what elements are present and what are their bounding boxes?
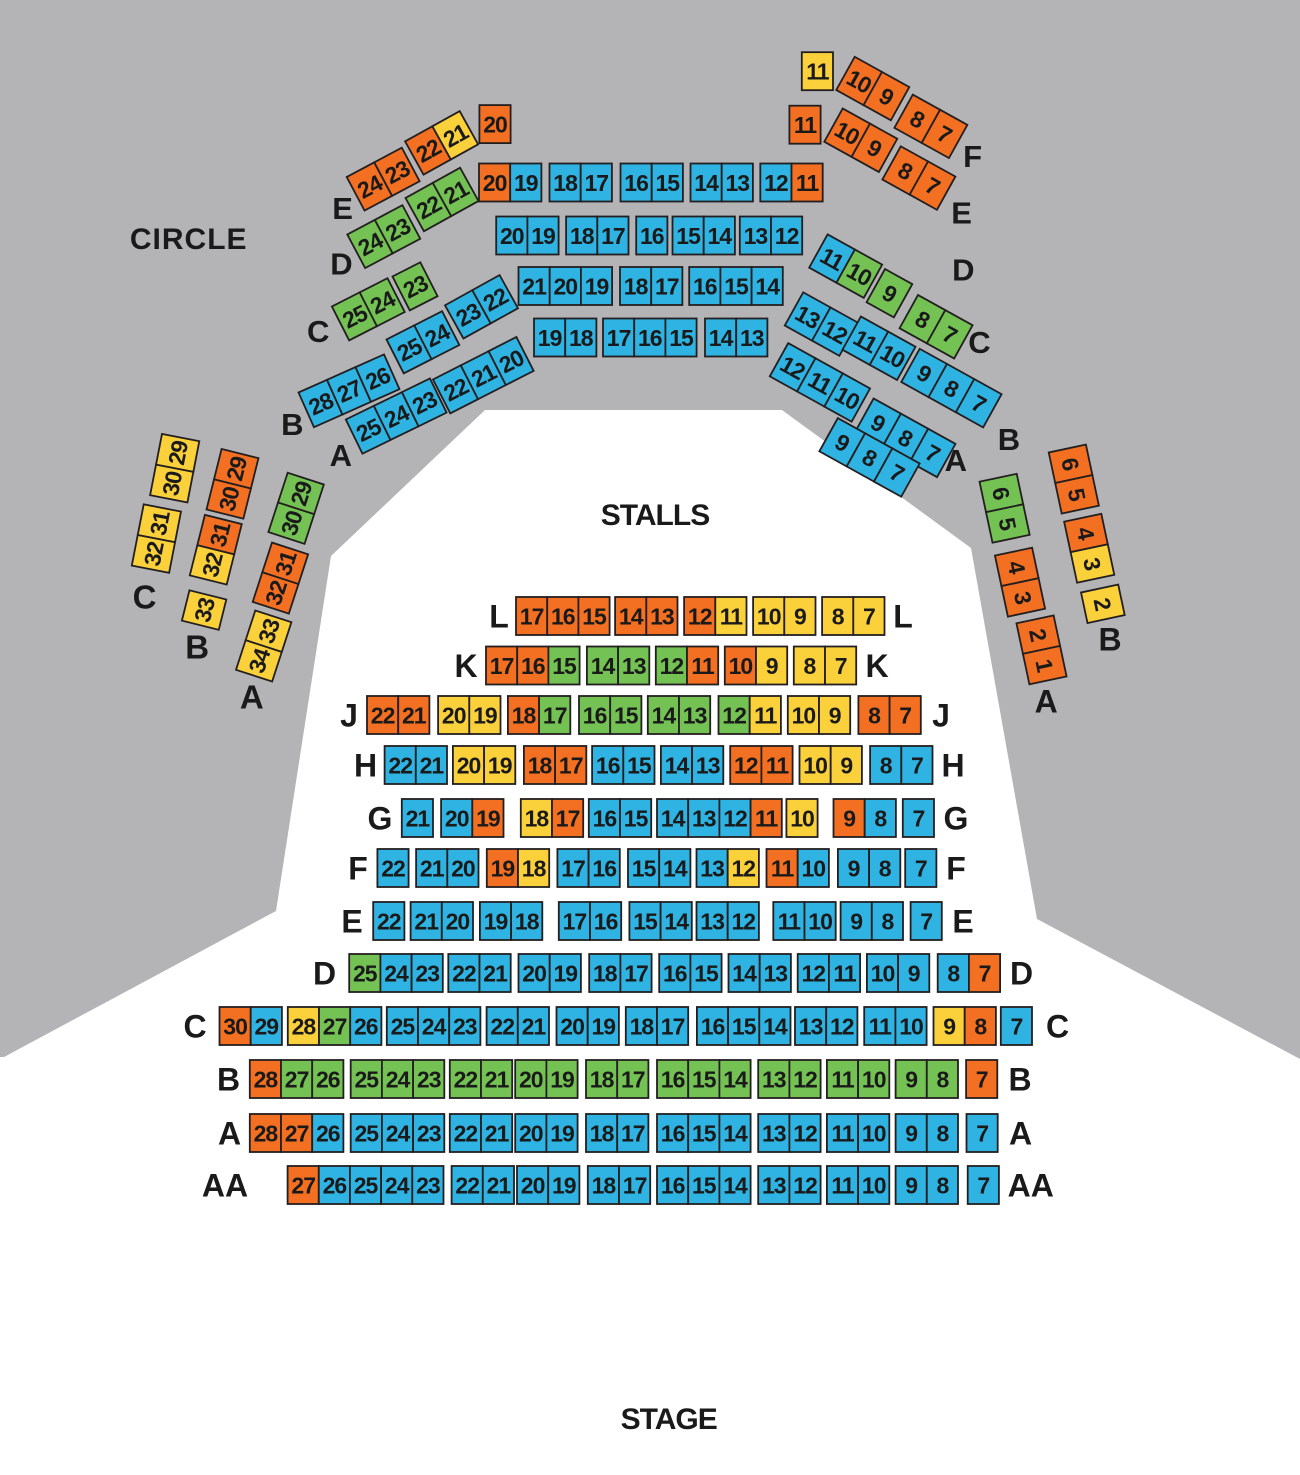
svg-text:9: 9 <box>829 702 841 728</box>
svg-text:12: 12 <box>723 805 747 831</box>
svg-text:B: B <box>1008 1062 1031 1098</box>
svg-text:7: 7 <box>1011 1013 1023 1039</box>
svg-text:16: 16 <box>640 223 664 249</box>
svg-text:16: 16 <box>661 1066 685 1092</box>
svg-text:14: 14 <box>708 223 733 249</box>
svg-text:10: 10 <box>862 1172 886 1198</box>
svg-text:25: 25 <box>354 1172 379 1198</box>
svg-text:11: 11 <box>833 960 857 986</box>
svg-text:12: 12 <box>732 855 756 881</box>
svg-text:13: 13 <box>650 603 674 629</box>
svg-text:G: G <box>368 801 393 837</box>
svg-text:11: 11 <box>755 805 779 831</box>
svg-text:22: 22 <box>381 855 405 881</box>
svg-text:18: 18 <box>593 960 618 986</box>
svg-text:13: 13 <box>762 1172 786 1198</box>
svg-text:F: F <box>348 851 368 887</box>
svg-text:J: J <box>340 698 358 734</box>
svg-text:D: D <box>313 956 336 992</box>
svg-text:AA: AA <box>1008 1168 1054 1204</box>
svg-text:18: 18 <box>553 170 578 196</box>
svg-text:8: 8 <box>937 1066 950 1092</box>
svg-text:10: 10 <box>862 1066 886 1092</box>
svg-text:22: 22 <box>452 960 476 986</box>
svg-text:13: 13 <box>726 170 750 196</box>
svg-text:A: A <box>945 443 967 478</box>
svg-text:8: 8 <box>804 653 817 679</box>
svg-text:19: 19 <box>484 908 508 934</box>
svg-text:17: 17 <box>621 1120 645 1146</box>
svg-text:10: 10 <box>790 805 814 831</box>
svg-text:17: 17 <box>585 170 609 196</box>
svg-text:14: 14 <box>694 170 719 196</box>
svg-text:20: 20 <box>554 273 578 299</box>
svg-text:22: 22 <box>388 752 412 778</box>
svg-text:14: 14 <box>663 855 688 881</box>
svg-text:27: 27 <box>285 1120 309 1146</box>
svg-text:25: 25 <box>355 1066 380 1092</box>
svg-text:15: 15 <box>732 1013 757 1039</box>
svg-text:7: 7 <box>911 752 923 778</box>
svg-text:14: 14 <box>755 273 780 299</box>
svg-text:21: 21 <box>406 805 431 831</box>
svg-text:21: 21 <box>485 1120 510 1146</box>
svg-text:14: 14 <box>723 1120 748 1146</box>
svg-text:20: 20 <box>457 752 481 778</box>
svg-text:23: 23 <box>416 1172 440 1198</box>
svg-text:28: 28 <box>254 1066 279 1092</box>
svg-text:9: 9 <box>843 805 855 831</box>
svg-text:20: 20 <box>445 805 469 831</box>
svg-text:13: 13 <box>799 1013 823 1039</box>
svg-text:14: 14 <box>723 1066 748 1092</box>
svg-text:23: 23 <box>453 1013 477 1039</box>
svg-text:18: 18 <box>590 1066 615 1092</box>
svg-text:C: C <box>307 314 329 349</box>
svg-text:13: 13 <box>696 752 720 778</box>
svg-text:12: 12 <box>732 908 756 934</box>
svg-text:20: 20 <box>451 855 475 881</box>
svg-text:20: 20 <box>483 170 507 196</box>
svg-text:12: 12 <box>793 1066 817 1092</box>
svg-text:8: 8 <box>880 752 893 778</box>
svg-text:14: 14 <box>619 603 644 629</box>
svg-text:14: 14 <box>661 805 686 831</box>
svg-text:21: 21 <box>487 1172 512 1198</box>
svg-text:18: 18 <box>592 1172 617 1198</box>
svg-text:10: 10 <box>792 702 816 728</box>
svg-text:16: 16 <box>594 908 618 934</box>
svg-text:9: 9 <box>794 603 806 629</box>
svg-text:17: 17 <box>559 752 583 778</box>
svg-text:7: 7 <box>976 1120 988 1146</box>
svg-text:15: 15 <box>614 702 639 728</box>
svg-text:8: 8 <box>868 702 881 728</box>
svg-text:21: 21 <box>483 960 508 986</box>
svg-text:16: 16 <box>663 960 687 986</box>
svg-text:21: 21 <box>420 752 445 778</box>
svg-text:J: J <box>932 698 950 734</box>
svg-text:19: 19 <box>491 855 515 881</box>
svg-text:CIRCLE: CIRCLE <box>130 223 248 256</box>
svg-text:15: 15 <box>632 855 657 881</box>
svg-text:21: 21 <box>522 1013 547 1039</box>
svg-text:8: 8 <box>832 603 845 629</box>
svg-text:19: 19 <box>488 752 512 778</box>
svg-text:17: 17 <box>661 1013 685 1039</box>
svg-text:E: E <box>951 196 972 231</box>
svg-text:13: 13 <box>762 1120 786 1146</box>
svg-text:16: 16 <box>624 170 648 196</box>
svg-text:19: 19 <box>550 1120 574 1146</box>
svg-text:24: 24 <box>422 1013 447 1039</box>
svg-text:22: 22 <box>455 1172 479 1198</box>
svg-text:26: 26 <box>354 1013 378 1039</box>
svg-text:23: 23 <box>415 960 439 986</box>
svg-text:14: 14 <box>723 1172 748 1198</box>
svg-text:C: C <box>1046 1009 1069 1045</box>
svg-text:28: 28 <box>292 1013 317 1039</box>
svg-text:STAGE: STAGE <box>621 1403 717 1436</box>
svg-text:22: 22 <box>454 1120 478 1146</box>
svg-text:9: 9 <box>905 1066 917 1092</box>
svg-text:12: 12 <box>764 170 788 196</box>
svg-text:25: 25 <box>355 1120 380 1146</box>
svg-text:A: A <box>218 1116 241 1152</box>
svg-text:9: 9 <box>850 908 862 934</box>
svg-text:16: 16 <box>693 273 717 299</box>
svg-text:13: 13 <box>744 223 768 249</box>
svg-text:7: 7 <box>915 855 927 881</box>
svg-text:18: 18 <box>630 1013 655 1039</box>
svg-text:15: 15 <box>692 1066 717 1092</box>
svg-text:8: 8 <box>937 1120 950 1146</box>
svg-text:7: 7 <box>899 702 911 728</box>
svg-text:22: 22 <box>490 1013 514 1039</box>
svg-text:27: 27 <box>285 1066 309 1092</box>
svg-text:9: 9 <box>905 1172 917 1198</box>
svg-text:H: H <box>941 748 964 784</box>
svg-text:L: L <box>489 599 509 635</box>
svg-text:19: 19 <box>476 805 500 831</box>
svg-text:15: 15 <box>627 752 652 778</box>
svg-text:12: 12 <box>722 702 746 728</box>
svg-text:20: 20 <box>446 908 470 934</box>
svg-text:7: 7 <box>976 1066 988 1092</box>
svg-text:7: 7 <box>920 908 932 934</box>
svg-text:15: 15 <box>676 223 701 249</box>
svg-text:8: 8 <box>937 1172 950 1198</box>
svg-text:18: 18 <box>624 273 649 299</box>
svg-text:17: 17 <box>543 702 567 728</box>
svg-text:18: 18 <box>522 855 547 881</box>
svg-text:23: 23 <box>417 1066 441 1092</box>
svg-text:20: 20 <box>442 702 466 728</box>
svg-text:16: 16 <box>638 325 662 351</box>
svg-text:13: 13 <box>692 805 716 831</box>
svg-text:13: 13 <box>683 702 707 728</box>
svg-text:17: 17 <box>601 223 625 249</box>
svg-text:A: A <box>240 679 264 716</box>
svg-text:16: 16 <box>596 752 620 778</box>
svg-text:15: 15 <box>624 805 649 831</box>
svg-text:20: 20 <box>519 1120 543 1146</box>
svg-text:19: 19 <box>531 223 555 249</box>
svg-text:A: A <box>330 438 352 473</box>
svg-text:15: 15 <box>656 170 681 196</box>
svg-text:9: 9 <box>943 1013 955 1039</box>
svg-text:10: 10 <box>802 855 826 881</box>
svg-text:14: 14 <box>664 908 689 934</box>
svg-text:14: 14 <box>652 702 677 728</box>
svg-text:11: 11 <box>794 112 818 138</box>
svg-text:12: 12 <box>793 1172 817 1198</box>
svg-text:9: 9 <box>905 1120 917 1146</box>
svg-text:17: 17 <box>621 1066 645 1092</box>
svg-text:15: 15 <box>582 603 607 629</box>
svg-text:17: 17 <box>520 603 544 629</box>
svg-text:F: F <box>963 139 982 174</box>
svg-text:20: 20 <box>522 960 546 986</box>
svg-text:STALLS: STALLS <box>601 499 709 532</box>
svg-text:18: 18 <box>525 805 550 831</box>
svg-text:15: 15 <box>692 1172 717 1198</box>
svg-text:8: 8 <box>882 908 895 934</box>
svg-text:27: 27 <box>323 1013 347 1039</box>
svg-text:16: 16 <box>583 702 607 728</box>
svg-text:19: 19 <box>552 1172 576 1198</box>
svg-text:16: 16 <box>521 653 545 679</box>
svg-text:21: 21 <box>402 702 427 728</box>
svg-text:16: 16 <box>551 603 575 629</box>
svg-text:13: 13 <box>762 1066 786 1092</box>
svg-text:B: B <box>217 1062 240 1098</box>
svg-text:9: 9 <box>908 960 920 986</box>
svg-text:7: 7 <box>979 960 991 986</box>
svg-text:11: 11 <box>806 59 830 85</box>
svg-text:21: 21 <box>485 1066 510 1092</box>
svg-text:10: 10 <box>729 653 753 679</box>
svg-text:7: 7 <box>913 805 925 831</box>
svg-text:14: 14 <box>591 653 616 679</box>
svg-text:13: 13 <box>740 325 764 351</box>
svg-text:16: 16 <box>661 1120 685 1146</box>
svg-text:13: 13 <box>622 653 646 679</box>
svg-text:11: 11 <box>691 653 715 679</box>
svg-text:11: 11 <box>754 702 778 728</box>
svg-text:21: 21 <box>420 855 445 881</box>
svg-text:D: D <box>952 253 974 288</box>
svg-text:12: 12 <box>688 603 712 629</box>
svg-text:15: 15 <box>724 273 749 299</box>
svg-text:17: 17 <box>607 325 631 351</box>
svg-text:20: 20 <box>521 1172 545 1198</box>
svg-text:20: 20 <box>519 1066 543 1092</box>
svg-text:25: 25 <box>391 1013 416 1039</box>
svg-text:19: 19 <box>585 273 609 299</box>
svg-text:12: 12 <box>802 960 826 986</box>
svg-text:10: 10 <box>808 908 832 934</box>
svg-text:18: 18 <box>569 325 594 351</box>
svg-text:8: 8 <box>879 855 892 881</box>
svg-text:27: 27 <box>291 1172 315 1198</box>
svg-text:30: 30 <box>223 1013 247 1039</box>
svg-text:D: D <box>330 246 352 281</box>
svg-text:28: 28 <box>254 1120 279 1146</box>
svg-text:21: 21 <box>414 908 439 934</box>
svg-text:18: 18 <box>590 1120 615 1146</box>
svg-text:15: 15 <box>694 960 719 986</box>
svg-text:F: F <box>946 851 966 887</box>
svg-text:11: 11 <box>831 1172 855 1198</box>
svg-text:B: B <box>281 407 303 442</box>
svg-text:13: 13 <box>700 908 724 934</box>
svg-text:15: 15 <box>633 908 658 934</box>
svg-text:10: 10 <box>899 1013 923 1039</box>
svg-text:10: 10 <box>862 1120 886 1146</box>
svg-text:22: 22 <box>371 702 395 728</box>
svg-text:11: 11 <box>771 855 795 881</box>
svg-text:12: 12 <box>660 653 684 679</box>
svg-text:11: 11 <box>766 752 790 778</box>
svg-text:10: 10 <box>803 752 827 778</box>
svg-text:A: A <box>1009 1116 1032 1152</box>
svg-text:B: B <box>998 422 1020 457</box>
svg-text:11: 11 <box>831 1066 855 1092</box>
svg-text:14: 14 <box>763 1013 788 1039</box>
svg-text:14: 14 <box>709 325 734 351</box>
svg-text:19: 19 <box>514 170 538 196</box>
svg-text:C: C <box>183 1009 206 1045</box>
svg-text:18: 18 <box>570 223 595 249</box>
svg-text:19: 19 <box>550 1066 574 1092</box>
svg-text:16: 16 <box>592 855 616 881</box>
svg-text:E: E <box>341 904 362 940</box>
svg-text:9: 9 <box>766 653 778 679</box>
svg-text:17: 17 <box>561 855 585 881</box>
svg-text:16: 16 <box>701 1013 725 1039</box>
svg-text:17: 17 <box>563 908 587 934</box>
svg-text:A: A <box>1035 683 1058 719</box>
svg-text:18: 18 <box>512 702 537 728</box>
svg-text:15: 15 <box>552 653 577 679</box>
svg-text:13: 13 <box>764 960 788 986</box>
svg-text:20: 20 <box>560 1013 584 1039</box>
svg-text:17: 17 <box>655 273 679 299</box>
svg-text:B: B <box>1098 622 1121 658</box>
svg-text:17: 17 <box>624 960 648 986</box>
svg-text:K: K <box>454 648 477 684</box>
svg-text:17: 17 <box>490 653 514 679</box>
svg-text:26: 26 <box>316 1120 340 1146</box>
svg-text:B: B <box>185 629 209 666</box>
svg-text:10: 10 <box>757 603 781 629</box>
svg-text:12: 12 <box>734 752 758 778</box>
svg-text:10: 10 <box>871 960 895 986</box>
svg-text:12: 12 <box>775 223 799 249</box>
svg-text:12: 12 <box>793 1120 817 1146</box>
svg-text:11: 11 <box>831 1120 855 1146</box>
svg-text:17: 17 <box>556 805 580 831</box>
svg-text:L: L <box>893 599 913 635</box>
svg-text:24: 24 <box>386 1066 411 1092</box>
svg-text:E: E <box>952 904 973 940</box>
svg-text:11: 11 <box>796 170 820 196</box>
svg-text:7: 7 <box>977 1172 989 1198</box>
svg-text:C: C <box>968 325 990 360</box>
svg-text:21: 21 <box>522 273 547 299</box>
svg-text:18: 18 <box>528 752 553 778</box>
svg-text:26: 26 <box>316 1066 340 1092</box>
svg-text:20: 20 <box>483 112 507 138</box>
svg-text:20: 20 <box>500 223 524 249</box>
svg-text:16: 16 <box>661 1172 685 1198</box>
svg-text:G: G <box>944 801 969 837</box>
svg-text:8: 8 <box>974 1013 987 1039</box>
svg-text:19: 19 <box>473 702 497 728</box>
svg-text:14: 14 <box>732 960 757 986</box>
svg-text:25: 25 <box>353 960 378 986</box>
svg-text:K: K <box>865 648 888 684</box>
svg-text:8: 8 <box>947 960 960 986</box>
svg-text:11: 11 <box>720 603 744 629</box>
svg-text:29: 29 <box>255 1013 279 1039</box>
svg-text:18: 18 <box>515 908 540 934</box>
svg-text:19: 19 <box>592 1013 616 1039</box>
svg-text:23: 23 <box>417 1120 441 1146</box>
svg-text:7: 7 <box>835 653 847 679</box>
svg-text:13: 13 <box>700 855 724 881</box>
svg-text:C: C <box>133 578 157 615</box>
svg-text:7: 7 <box>863 603 875 629</box>
svg-text:17: 17 <box>623 1172 647 1198</box>
svg-text:11: 11 <box>778 908 802 934</box>
svg-text:19: 19 <box>538 325 562 351</box>
svg-text:AA: AA <box>202 1168 248 1204</box>
svg-text:24: 24 <box>385 1172 410 1198</box>
svg-text:26: 26 <box>323 1172 347 1198</box>
svg-text:9: 9 <box>840 752 852 778</box>
svg-text:15: 15 <box>669 325 694 351</box>
svg-text:14: 14 <box>665 752 690 778</box>
svg-text:24: 24 <box>386 1120 411 1146</box>
svg-text:22: 22 <box>454 1066 478 1092</box>
svg-text:19: 19 <box>554 960 578 986</box>
svg-text:D: D <box>1010 956 1033 992</box>
svg-text:H: H <box>354 748 377 784</box>
svg-text:15: 15 <box>692 1120 717 1146</box>
svg-text:12: 12 <box>830 1013 854 1039</box>
svg-text:24: 24 <box>384 960 409 986</box>
svg-text:8: 8 <box>874 805 887 831</box>
svg-text:22: 22 <box>377 908 401 934</box>
svg-text:11: 11 <box>869 1013 893 1039</box>
svg-text:E: E <box>332 191 353 226</box>
svg-text:16: 16 <box>593 805 617 831</box>
svg-text:9: 9 <box>848 855 860 881</box>
